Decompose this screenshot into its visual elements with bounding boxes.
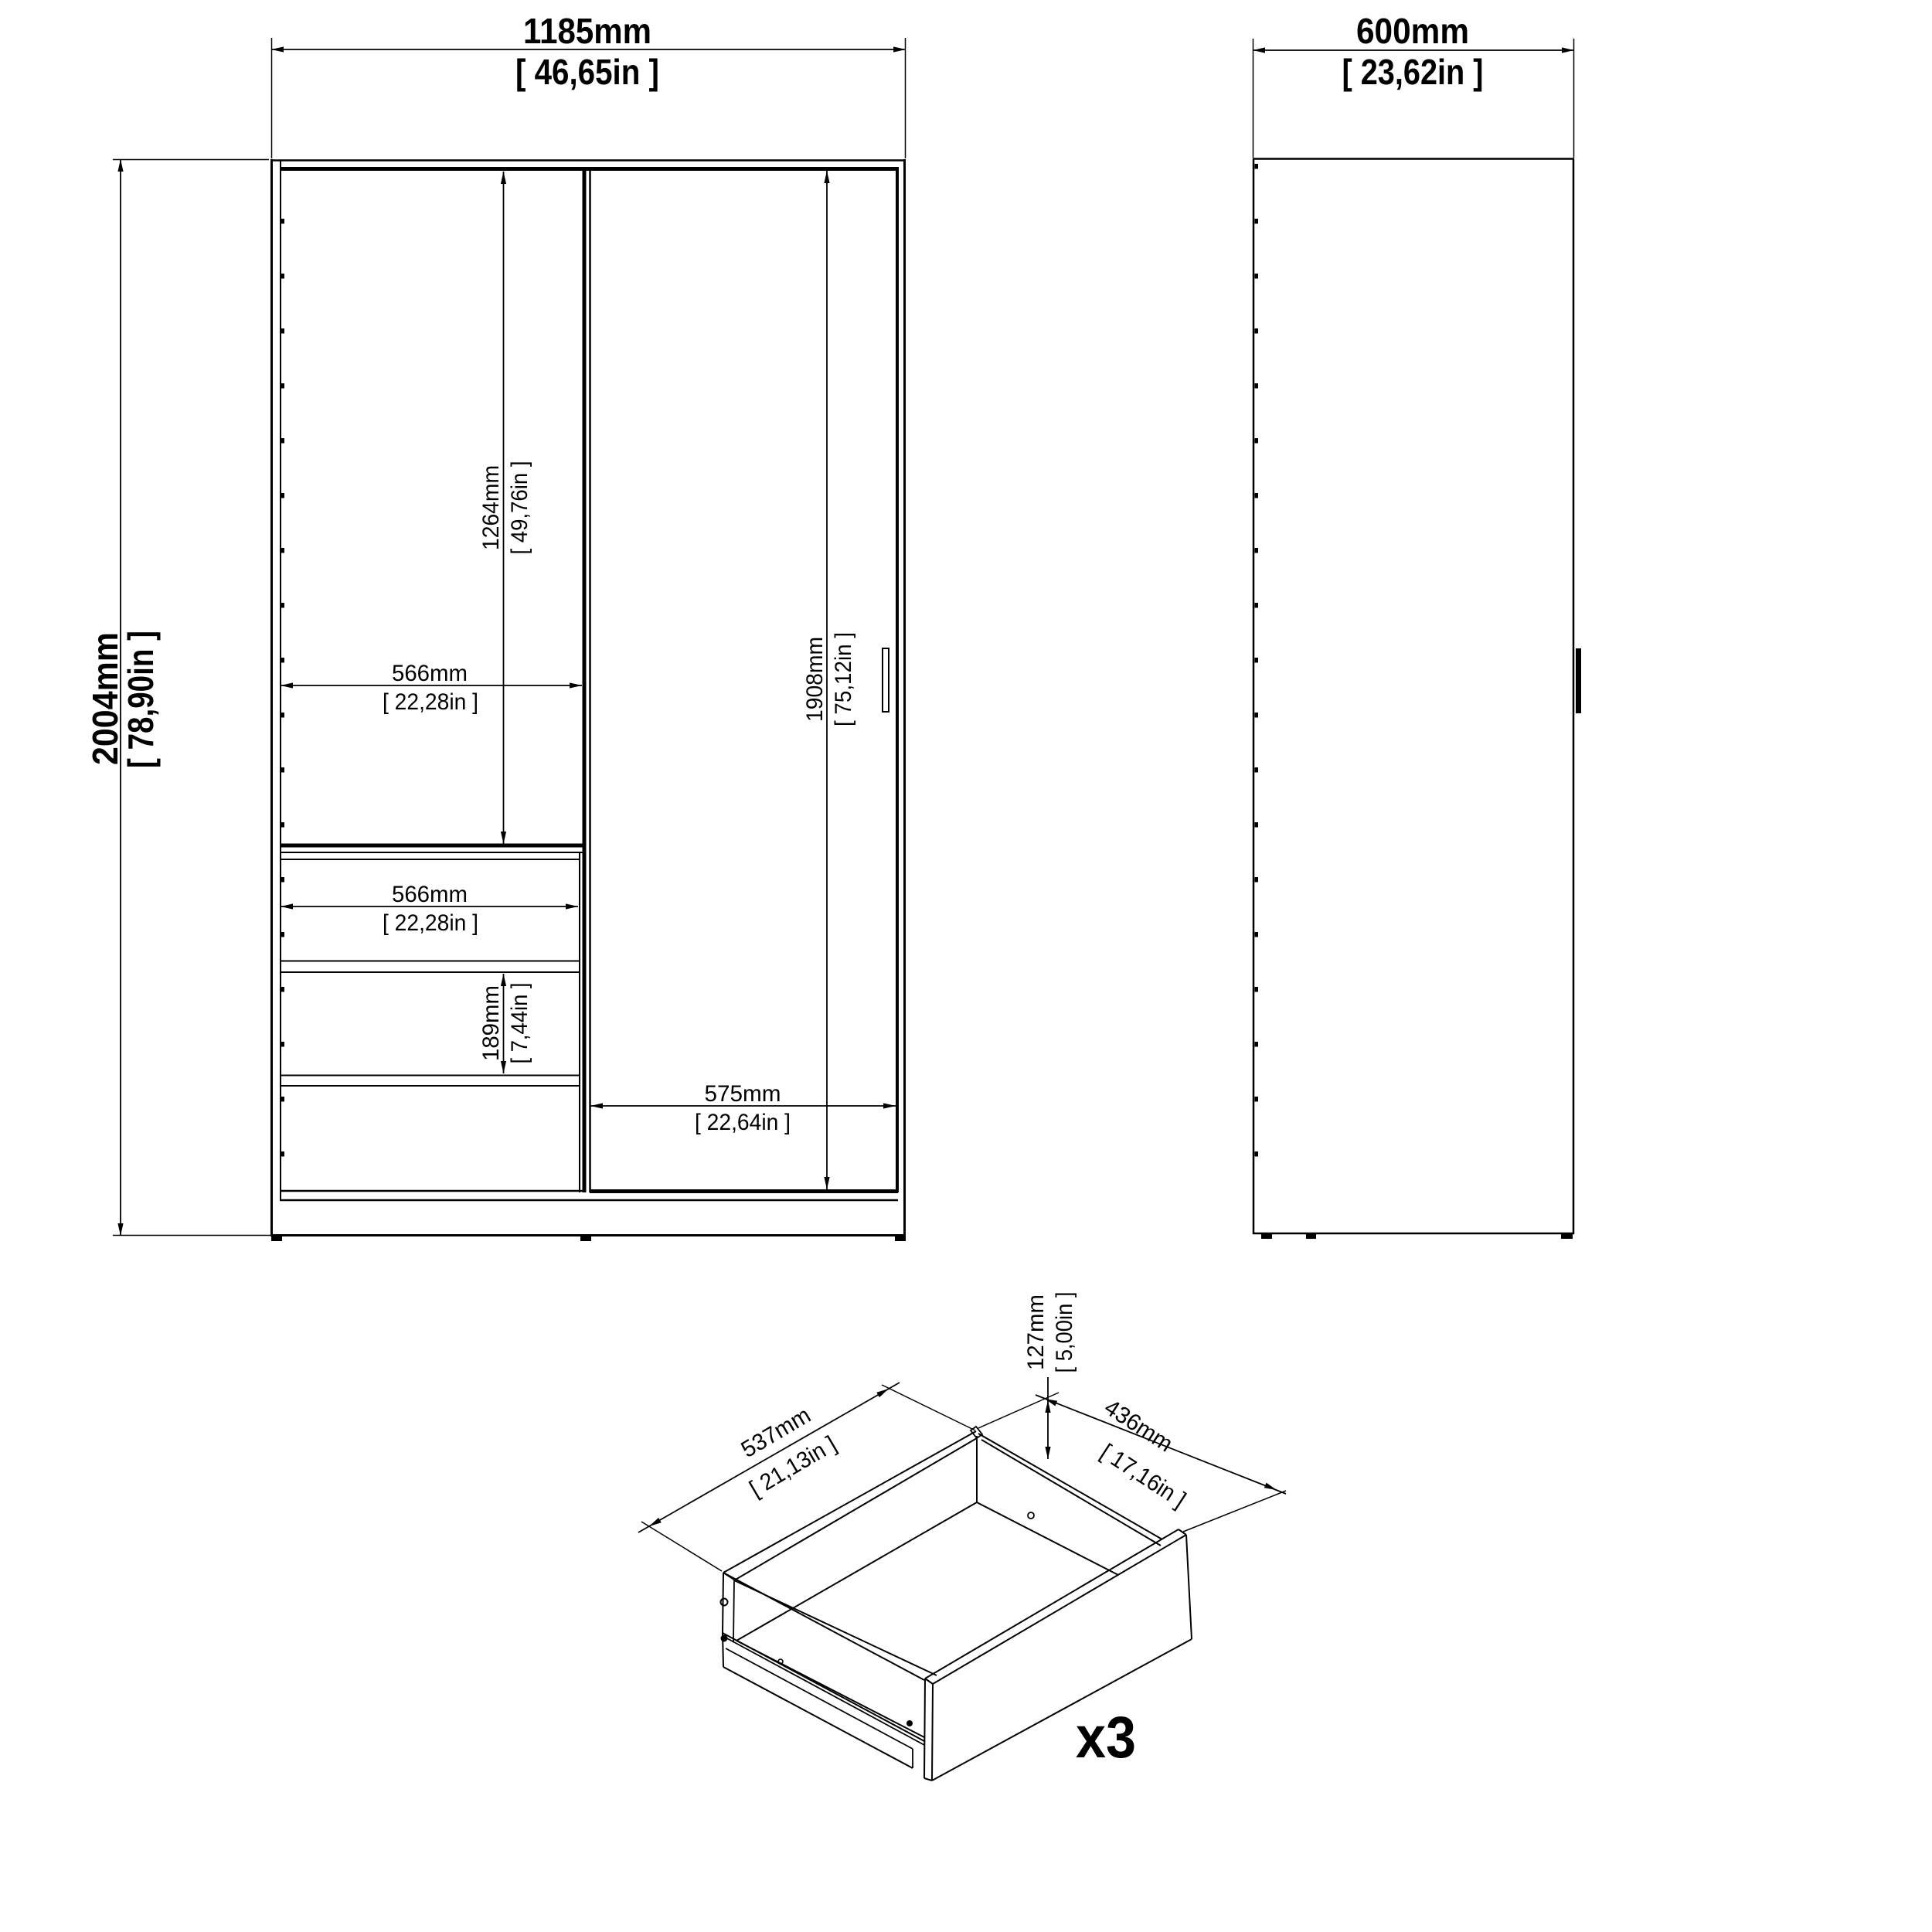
svg-text:[ 7,44in ]: [ 7,44in ] [507,983,532,1064]
svg-text:189mm: 189mm [478,985,504,1061]
svg-text:566mm: 566mm [392,882,468,907]
svg-text:127mm: 127mm [1023,1294,1049,1370]
svg-text:575mm: 575mm [705,1081,781,1107]
svg-text:1264mm: 1264mm [478,465,504,550]
svg-text:[ 49,76in ]: [ 49,76in ] [507,461,532,555]
svg-text:1908mm: 1908mm [802,637,828,722]
svg-text:[ 23,62in ]: [ 23,62in ] [1342,52,1484,92]
svg-text:[ 5,00in ]: [ 5,00in ] [1052,1292,1077,1373]
svg-text:1185mm: 1185mm [523,11,651,51]
svg-text:566mm: 566mm [392,661,468,686]
svg-text:[ 22,28in ]: [ 22,28in ] [383,910,478,936]
svg-text:[ 22,28in ]: [ 22,28in ] [383,689,478,715]
svg-text:[ 78,90in ]: [ 78,90in ] [121,631,161,768]
svg-text:600mm: 600mm [1356,11,1469,51]
svg-text:[ 46,65in ]: [ 46,65in ] [515,52,659,92]
svg-text:[ 75,12in ]: [ 75,12in ] [831,632,856,726]
svg-text:[ 22,64in ]: [ 22,64in ] [695,1110,791,1135]
svg-text:2004mm: 2004mm [85,632,125,765]
svg-text:x3: x3 [1076,1705,1136,1770]
